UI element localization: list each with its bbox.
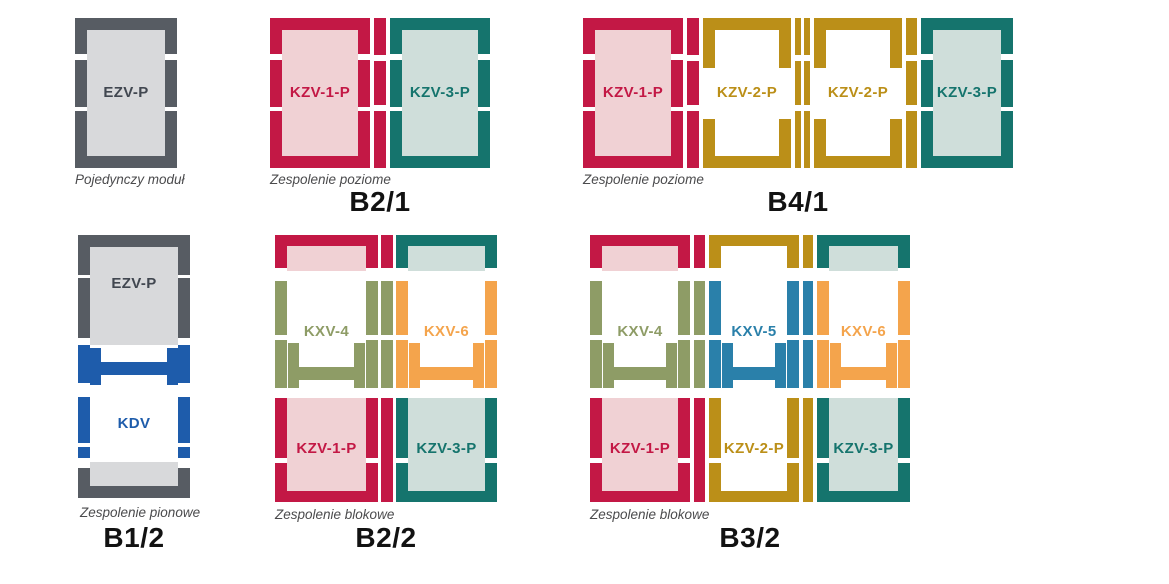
connector-side-bar [178,345,190,383]
frame-leg [898,246,910,268]
frame-leg [165,30,177,54]
frame-leg [590,246,602,268]
frame-leg [590,468,602,491]
strip-segment [803,340,813,388]
module-label: KZV-3-P [396,440,497,457]
strip-gap [374,105,386,111]
module-label: KZV-3-P [390,84,490,101]
strip-gap [374,55,386,61]
frame-leg [165,111,177,156]
frame-leg [270,30,282,54]
block-column-kxv6-kzv3p: KXV-6 KZV-3-P [396,235,497,502]
frame-leg [1001,30,1013,54]
module-label: KZV-2-P [703,84,791,101]
caption-b32: Zespolenie blokowe [590,507,709,522]
frame-leg [178,468,190,486]
strip-segment [381,398,393,502]
connector-side-bar [678,340,690,388]
connector-side-bar [366,340,378,388]
strip-segment [803,398,813,502]
frame-bottom-bar [583,156,683,168]
frame-top-bar [75,18,177,30]
frame-leg [270,111,282,156]
strip-segment [381,340,393,388]
module-label: KXV-6 [817,323,910,340]
strip-gap [795,105,801,111]
h-connector-post [830,343,841,388]
frame-bottom-bar [817,491,910,502]
frame-leg [703,30,715,68]
frame-leg [817,468,829,491]
frame-top-bar [275,235,378,246]
frame-top-bar [390,18,490,30]
h-connector-post [409,343,420,388]
frame-bottom-bar [921,156,1013,168]
frame-leg [671,111,683,156]
frame-bottom-bar [78,486,190,498]
frame-leg [396,468,408,491]
module-label: KXV-4 [590,323,690,340]
h-connector-bar [101,362,167,375]
strip-gap [795,55,801,61]
frame-leg [898,468,910,491]
strip-segment [381,235,393,268]
strip-gap [804,55,810,61]
combo-code-b12: B1/2 [78,522,190,554]
strip-segment [803,281,813,335]
frame-leg [921,30,933,54]
frame-leg [178,247,190,275]
frame-bottom-bar [390,156,490,168]
module-fill [90,462,178,486]
frame-leg [787,468,799,491]
frame-leg [779,119,791,157]
strip-segment [803,235,813,268]
module-label: KZV-3-P [817,440,910,457]
combo-code-b41: B4/1 [583,186,1013,218]
strip-gap [687,55,699,61]
strip-segment [694,340,705,388]
h-connector-bar [841,367,886,380]
module-label: KZV-1-P [275,440,378,457]
h-connector-post [666,343,677,388]
frame-leg [485,468,497,491]
module-label: KXV-6 [396,323,497,340]
frame-leg [366,246,378,268]
connector-side-bar [78,345,90,383]
frame-bottom-bar [590,491,690,502]
frame-leg [583,111,595,156]
frame-leg [890,30,902,68]
frame-leg [366,468,378,491]
module-label: EZV-P [78,275,190,292]
frame-leg [396,246,408,268]
strip-segment [694,398,705,502]
frame-bottom-bar [814,156,902,168]
strip-segment [694,235,705,268]
frame-leg [583,30,595,54]
frame-top-bar [814,18,902,30]
strip-gap [804,105,810,111]
frame-leg [678,246,690,268]
frame-top-bar [817,235,910,246]
frame-leg [75,30,87,54]
h-connector-bar [614,367,666,380]
combo-code-b22: B2/2 [275,522,497,554]
module-label: KDV [78,415,190,432]
strip-segment [381,281,393,335]
frame-leg [814,119,826,157]
frame-top-bar [270,18,370,30]
frame-leg [478,111,490,156]
h-connector-bar [733,367,775,380]
h-connector-post [775,343,786,388]
flashing-combinations-diagram: EZV-P Pojedynczy moduł KZV-1-P KZV-3-P Z… [0,0,1169,584]
module-fill [90,247,178,345]
module-kzv-1-p: KZV-1-P [270,18,370,168]
frame-leg [678,468,690,491]
block-column-kxv4-kzv1p: KXV-4 KZV-1-P [275,235,378,502]
frame-top-bar [396,235,497,246]
connector-side-bar [485,340,497,388]
h-connector-post [722,343,733,388]
frame-leg [78,468,90,486]
frame-leg [787,246,799,268]
frame-top-bar [583,18,683,30]
frame-bottom-bar [396,491,497,502]
frame-leg [814,30,826,68]
coupling-strip [381,235,393,502]
h-connector-post [603,343,614,388]
coupling-strip [694,235,705,502]
module-fill [602,246,678,271]
coupling-strip [374,18,386,168]
frame-leg [478,30,490,54]
coupling-strip [906,18,917,168]
module-label: KZV-1-P [270,84,370,101]
frame-leg [709,246,721,268]
module-fill [408,246,485,271]
strip-gap [687,105,699,111]
frame-bottom-bar [709,491,799,502]
module-kzv-2-p: KZV-2-P [814,18,902,168]
frame-bottom-bar [270,156,370,168]
connector-side-bar [396,340,408,388]
combo-code-b21: B2/1 [270,186,490,218]
frame-leg [275,468,287,491]
frame-leg [703,119,715,157]
frame-leg [1001,111,1013,156]
frame-bottom-bar [703,156,791,168]
module-fill [829,246,898,271]
connector-side-bar [817,340,829,388]
connector-side-bar [275,340,287,388]
strip-gap [906,55,917,61]
frame-top-bar [709,235,799,246]
module-label: KXV-4 [275,323,378,340]
caption-single: Pojedynczy moduł [75,172,185,187]
strip-gap [906,105,917,111]
frame-leg [671,30,683,54]
coupling-strip [803,235,813,502]
frame-leg [921,111,933,156]
block-column-kxv6-kzv3p: KXV-6 KZV-3-P [817,235,910,502]
frame-leg [890,119,902,157]
frame-leg [817,246,829,268]
coupling-strip [804,18,810,168]
module-kzv-1-p: KZV-1-P [583,18,683,168]
connector-side-bar [898,340,910,388]
module-kzv-2-p: KZV-2-P [703,18,791,168]
frame-leg [75,111,87,156]
module-label: KZV-1-P [590,440,690,457]
h-connector-post [90,348,101,385]
h-connector-post [288,343,299,388]
block-column-kxv4-kzv1p: KXV-4 KZV-1-P [590,235,690,502]
frame-leg [390,111,402,156]
connector-side-bar [709,340,721,388]
h-connector-bar [299,367,354,380]
connector-side-bar [787,340,799,388]
module-label: KZV-2-P [709,440,799,457]
frame-leg [709,468,721,491]
frame-top-bar [78,235,190,247]
caption-b22: Zespolenie blokowe [275,507,394,522]
frame-bottom-bar [75,156,177,168]
module-fill [287,246,366,271]
frame-leg [358,30,370,54]
caption-b41: Zespolenie poziome [583,172,704,187]
module-ezv-p-single: EZV-P [75,18,177,168]
frame-top-bar [921,18,1013,30]
coupling-strip [687,18,699,168]
combo-code-b32: B3/2 [590,522,910,554]
frame-bottom-bar [275,491,378,502]
frame-leg [275,246,287,268]
frame-side-bar [178,447,190,458]
frame-side-bar [78,447,90,458]
block-column-kxv5-kzv2p: KXV-5 KZV-2-P [709,235,799,502]
h-connector-post [886,343,897,388]
h-connector-post [473,343,484,388]
combo-b12: EZV-P KDV [78,235,190,498]
module-kzv-3-p: KZV-3-P [390,18,490,168]
frame-leg [390,30,402,54]
coupling-strip [795,18,801,168]
strip-segment [694,281,705,335]
frame-top-bar [703,18,791,30]
h-connector-bar [420,367,473,380]
caption-b21: Zespolenie poziome [270,172,391,187]
module-label: KZV-3-P [921,84,1013,101]
module-label: KZV-2-P [814,84,902,101]
h-connector-post [354,343,365,388]
module-label: KXV-5 [709,323,799,340]
frame-leg [779,30,791,68]
module-label: KZV-1-P [583,84,683,101]
frame-leg [358,111,370,156]
connector-side-bar [590,340,602,388]
module-label: EZV-P [75,84,177,101]
h-connector-post [167,348,178,385]
frame-top-bar [590,235,690,246]
frame-leg [78,247,90,275]
frame-leg [485,246,497,268]
module-kzv-3-p: KZV-3-P [921,18,1013,168]
caption-b12: Zespolenie pionowe [80,505,200,520]
